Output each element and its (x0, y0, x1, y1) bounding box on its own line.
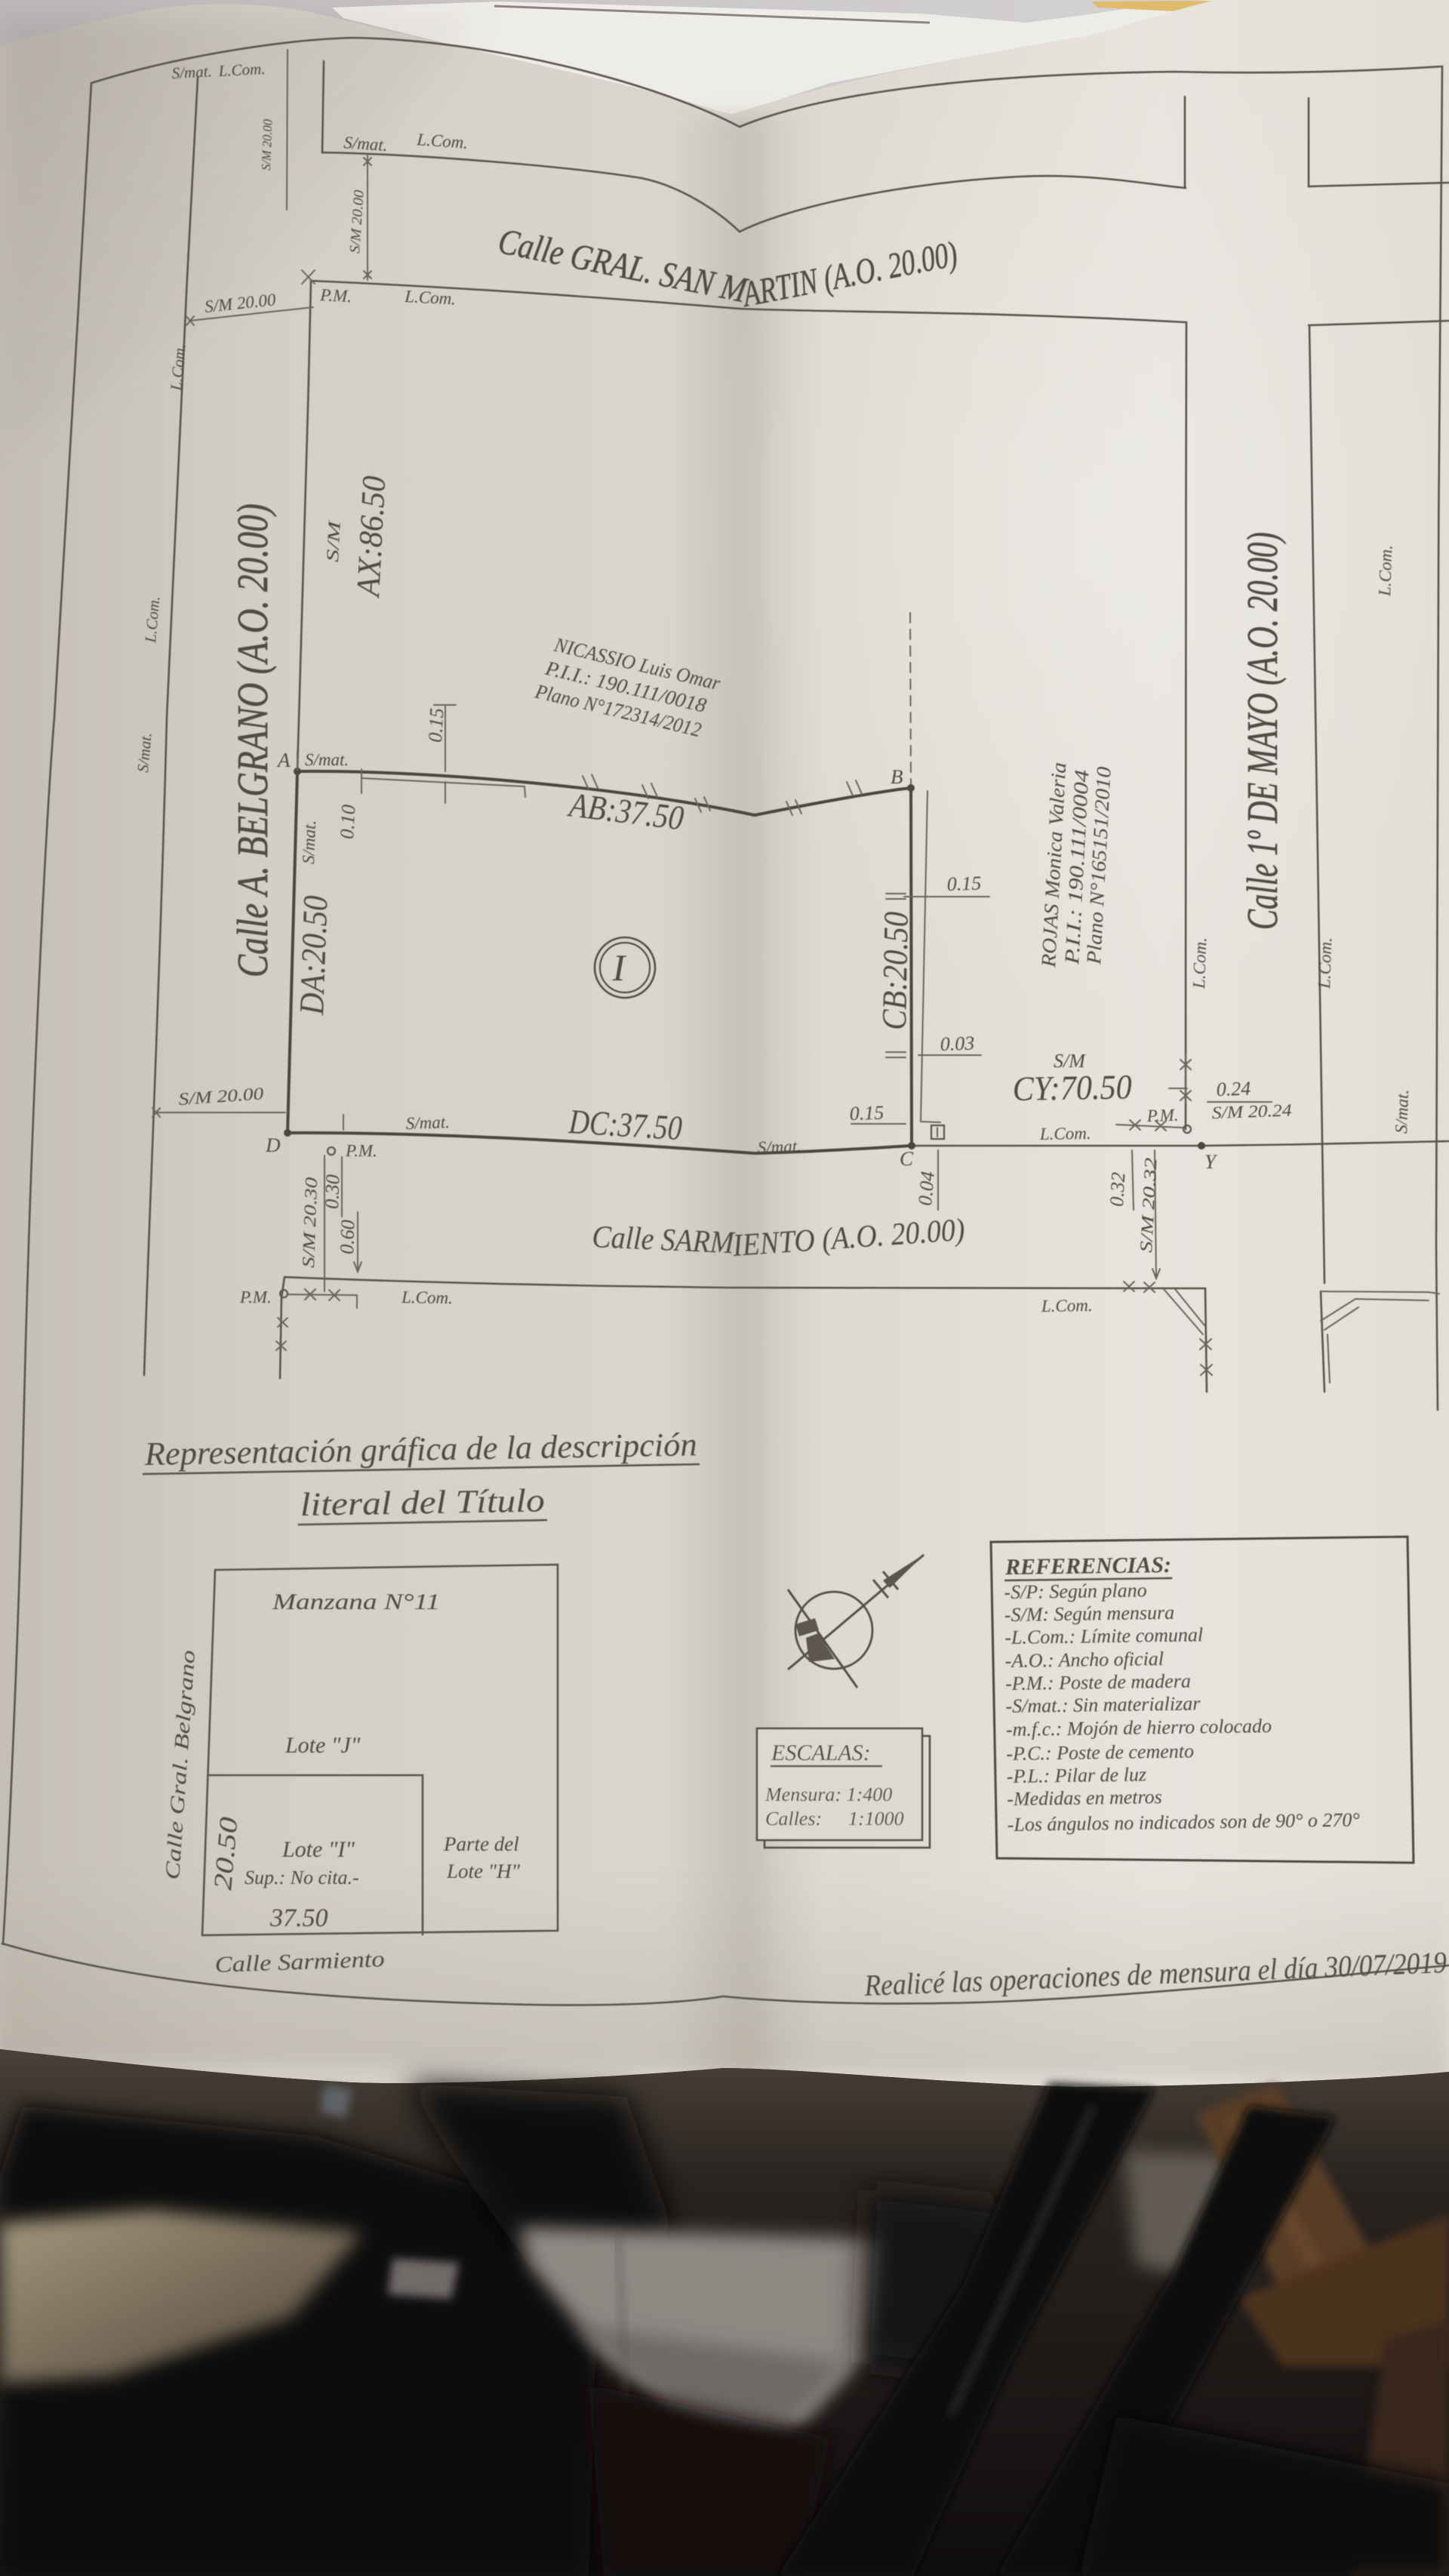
svg-text:0.10: 0.10 (336, 804, 359, 839)
svg-text:-A.O.: Ancho oficial: -A.O.: Ancho oficial (1004, 1648, 1164, 1672)
svg-text:DA:20.50: DA:20.50 (292, 895, 335, 1017)
svg-text:P.M.: P.M. (239, 1288, 272, 1306)
svg-text:P.M.: P.M. (1146, 1106, 1179, 1125)
svg-text:L.Com.: L.Com. (1041, 1296, 1093, 1316)
svg-text:S/mat.: S/mat. (757, 1137, 801, 1157)
svg-text:S/M 20.30: S/M 20.30 (299, 1177, 321, 1268)
svg-text:L.Com.: L.Com. (1375, 545, 1395, 598)
svg-text:DC:37.50: DC:37.50 (568, 1102, 684, 1147)
svg-text:S/M 20.00: S/M 20.00 (259, 118, 275, 171)
svg-text:I: I (612, 946, 627, 989)
svg-text:-m.f.c.: Mojón de hierro coloc: -m.f.c.: Mojón de hierro colocado (1006, 1715, 1272, 1740)
svg-text:-P.C.: Poste de cemento: -P.C.: Poste de cemento (1006, 1740, 1194, 1765)
svg-text:P.M.: P.M. (319, 285, 352, 306)
svg-text:0.15: 0.15 (946, 872, 981, 895)
svg-text:0.15: 0.15 (849, 1101, 884, 1125)
svg-text:S/mat.: S/mat. (299, 820, 319, 864)
svg-text:1:1000: 1:1000 (848, 1808, 904, 1830)
svg-text:Mensura: 1:400: Mensura: 1:400 (764, 1784, 892, 1805)
svg-text:S/mat.: S/mat. (343, 133, 389, 155)
svg-text:-Medidas en metros: -Medidas en metros (1007, 1786, 1162, 1810)
svg-text:S/mat.: S/mat. (305, 750, 349, 769)
svg-text:-L.Com.: Límite comunal: -L.Com.: Límite comunal (1004, 1623, 1203, 1648)
svg-text:Lote "H": Lote "H" (446, 1860, 521, 1882)
svg-text:-S/P: Según plano: -S/P: Según plano (1004, 1579, 1147, 1603)
svg-text:-S/mat.: Sin materializar: -S/mat.: Sin materializar (1005, 1692, 1201, 1717)
svg-text:0.32: 0.32 (1106, 1171, 1129, 1207)
svg-text:-S/M: Según mensura: -S/M: Según mensura (1004, 1602, 1175, 1626)
svg-text:L.Com.: L.Com. (1039, 1124, 1091, 1143)
svg-text:Manzana N°11: Manzana N°11 (272, 1590, 440, 1614)
svg-text:A: A (276, 749, 291, 771)
svg-text:-P.M.: Poste de madera: -P.M.: Poste de madera (1005, 1670, 1191, 1694)
svg-text:Calles:: Calles: (765, 1808, 822, 1830)
svg-text:Lote "I": Lote "I" (281, 1837, 355, 1862)
svg-text:literal del Título: literal del Título (300, 1482, 545, 1523)
svg-text:B: B (891, 765, 903, 788)
svg-text:0.03: 0.03 (940, 1032, 974, 1055)
svg-text:Calle A. BELGRANO (A.O. 20.00: Calle A. BELGRANO (A.O. 20.00) (228, 503, 277, 977)
svg-text:Parte del: Parte del (443, 1833, 519, 1855)
svg-text:Calle 1º DE MAYO (A.O. 20.00: Calle 1º DE MAYO (A.O. 20.00) (1238, 532, 1287, 930)
svg-text:AX:86.50: AX:86.50 (349, 475, 392, 599)
svg-text:L.Com.: L.Com. (217, 60, 266, 80)
svg-text:L.Com.: L.Com. (404, 287, 457, 309)
svg-text:Calle SARM: Calle SARM (592, 1220, 737, 1260)
svg-text:Lote "J": Lote "J" (285, 1733, 361, 1758)
svg-text:S/mat.: S/mat. (405, 1113, 450, 1133)
svg-text:L.Com.: L.Com. (1315, 937, 1335, 990)
svg-text:P.M.: P.M. (345, 1141, 377, 1160)
svg-text:0.60: 0.60 (336, 1220, 359, 1254)
svg-text:0.04: 0.04 (914, 1171, 939, 1207)
svg-text:S/mat.: S/mat. (171, 62, 212, 82)
svg-text:S/M 20.24: S/M 20.24 (1211, 1100, 1292, 1122)
svg-text:0.30: 0.30 (321, 1174, 344, 1209)
svg-text:L.Com.: L.Com. (401, 1288, 453, 1307)
svg-text:L.Com.: L.Com. (1189, 937, 1210, 990)
svg-text:37.50: 37.50 (269, 1904, 328, 1932)
svg-text:CY:70.50: CY:70.50 (1012, 1067, 1132, 1108)
svg-text:L.Com.: L.Com. (416, 130, 469, 152)
svg-text:-P.L.: Pilar de luz: -P.L.: Pilar de luz (1007, 1763, 1147, 1787)
svg-text:REFERENCIAS:: REFERENCIAS: (1004, 1553, 1172, 1580)
svg-text:D: D (265, 1134, 281, 1156)
svg-text:ESCALAS:: ESCALAS: (771, 1740, 871, 1765)
svg-text:C: C (900, 1147, 914, 1170)
svg-text:S/mat.: S/mat. (134, 731, 155, 773)
svg-text:CB:20.50: CB:20.50 (875, 911, 915, 1030)
svg-text:S/M: S/M (323, 519, 344, 562)
svg-text:Sup.: No cita.-: Sup.: No cita.- (245, 1867, 359, 1888)
svg-text:0.15: 0.15 (424, 707, 448, 743)
svg-text:S/mat.: S/mat. (1392, 1089, 1412, 1134)
svg-text:0.24: 0.24 (1216, 1077, 1251, 1100)
